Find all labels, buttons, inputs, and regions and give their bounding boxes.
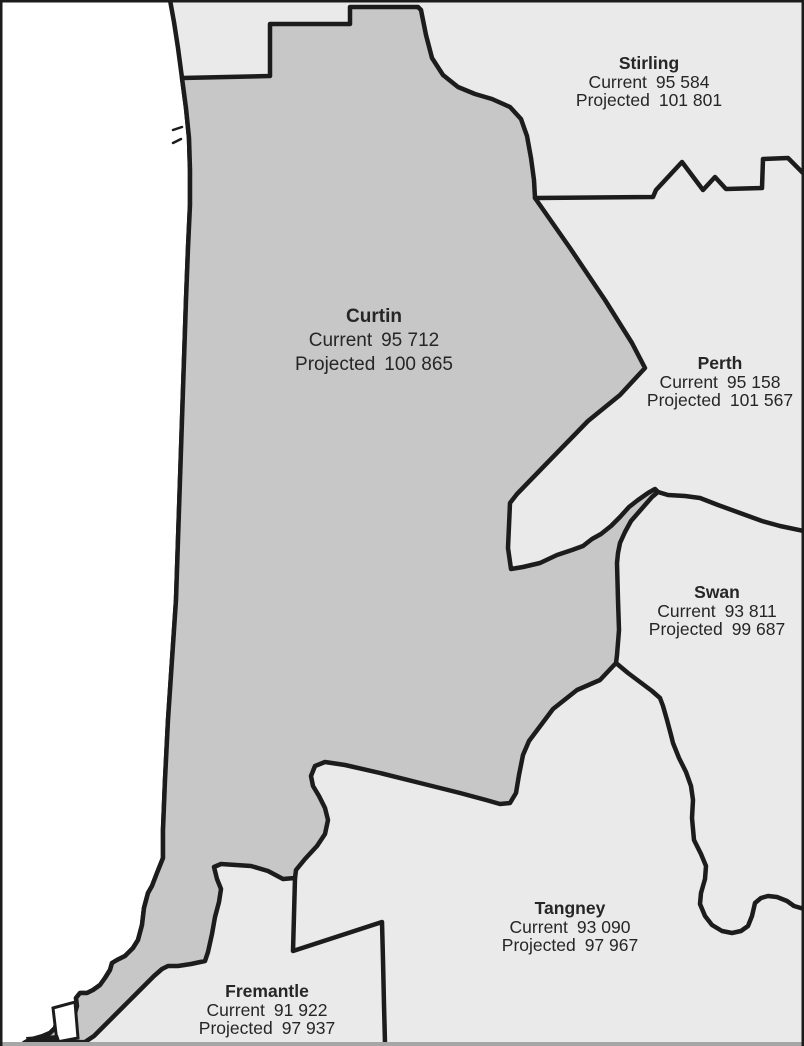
region-name: Swan <box>649 583 785 602</box>
projected-value: 101 567 <box>730 390 793 410</box>
current-line: Current95 584 <box>576 73 722 92</box>
projected-line: Projected97 967 <box>502 936 638 955</box>
region-label-curtin: Curtin Current95 712 Projected100 865 <box>295 305 453 377</box>
current-value: 93 811 <box>725 601 777 621</box>
region-label-stirling: Stirling Current95 584 Projected101 801 <box>576 54 722 110</box>
bottom-edge-strip <box>0 1042 804 1046</box>
projected-value: 97 937 <box>282 1018 336 1038</box>
projected-line: Projected97 937 <box>199 1019 335 1038</box>
projected-label: Projected <box>502 935 576 955</box>
projected-value: 100 865 <box>384 354 453 375</box>
current-line: Current91 922 <box>199 1001 335 1020</box>
current-label: Current <box>309 330 372 351</box>
current-line: Current93 811 <box>649 602 785 621</box>
region-label-fremantle: Fremantle Current91 922 Projected97 937 <box>199 982 335 1038</box>
region-label-swan: Swan Current93 811 Projected99 687 <box>649 583 785 639</box>
projected-line: Projected100 865 <box>295 353 453 377</box>
current-line: Current93 090 <box>502 918 638 937</box>
current-label: Current <box>657 601 715 621</box>
projected-line: Projected101 801 <box>576 91 722 110</box>
current-value: 93 090 <box>577 917 631 937</box>
region-label-tangney: Tangney Current93 090 Projected97 967 <box>502 899 638 955</box>
electorate-map: Stirling Current95 584 Projected101 801 … <box>0 0 804 1046</box>
coast-groyne-ticks <box>173 127 182 143</box>
region-label-perth: Perth Current95 158 Projected101 567 <box>647 354 793 410</box>
region-name: Tangney <box>502 899 638 918</box>
region-name: Curtin <box>295 305 453 329</box>
projected-label: Projected <box>576 90 650 110</box>
current-label: Current <box>207 1000 265 1020</box>
current-value: 95 712 <box>381 330 439 351</box>
projected-value: 97 967 <box>585 935 639 955</box>
current-value: 95 158 <box>727 372 781 392</box>
projected-label: Projected <box>647 390 721 410</box>
current-value: 91 922 <box>274 1000 328 1020</box>
projected-label: Projected <box>199 1018 273 1038</box>
frame-top <box>0 0 804 3</box>
current-line: Current95 712 <box>295 329 453 353</box>
frame-left <box>0 0 3 1046</box>
current-label: Current <box>510 917 568 937</box>
projected-line: Projected99 687 <box>649 620 785 639</box>
region-name: Perth <box>647 354 793 373</box>
projected-value: 101 801 <box>659 90 722 110</box>
region-name: Fremantle <box>199 982 335 1001</box>
projected-line: Projected101 567 <box>647 391 793 410</box>
projected-value: 99 687 <box>732 619 786 639</box>
map-canvas <box>0 0 804 1046</box>
current-value: 95 584 <box>656 72 710 92</box>
projected-label: Projected <box>649 619 723 639</box>
region-name: Stirling <box>576 54 722 73</box>
projected-label: Projected <box>295 354 375 375</box>
current-label: Current <box>589 72 647 92</box>
current-label: Current <box>660 372 718 392</box>
current-line: Current95 158 <box>647 373 793 392</box>
